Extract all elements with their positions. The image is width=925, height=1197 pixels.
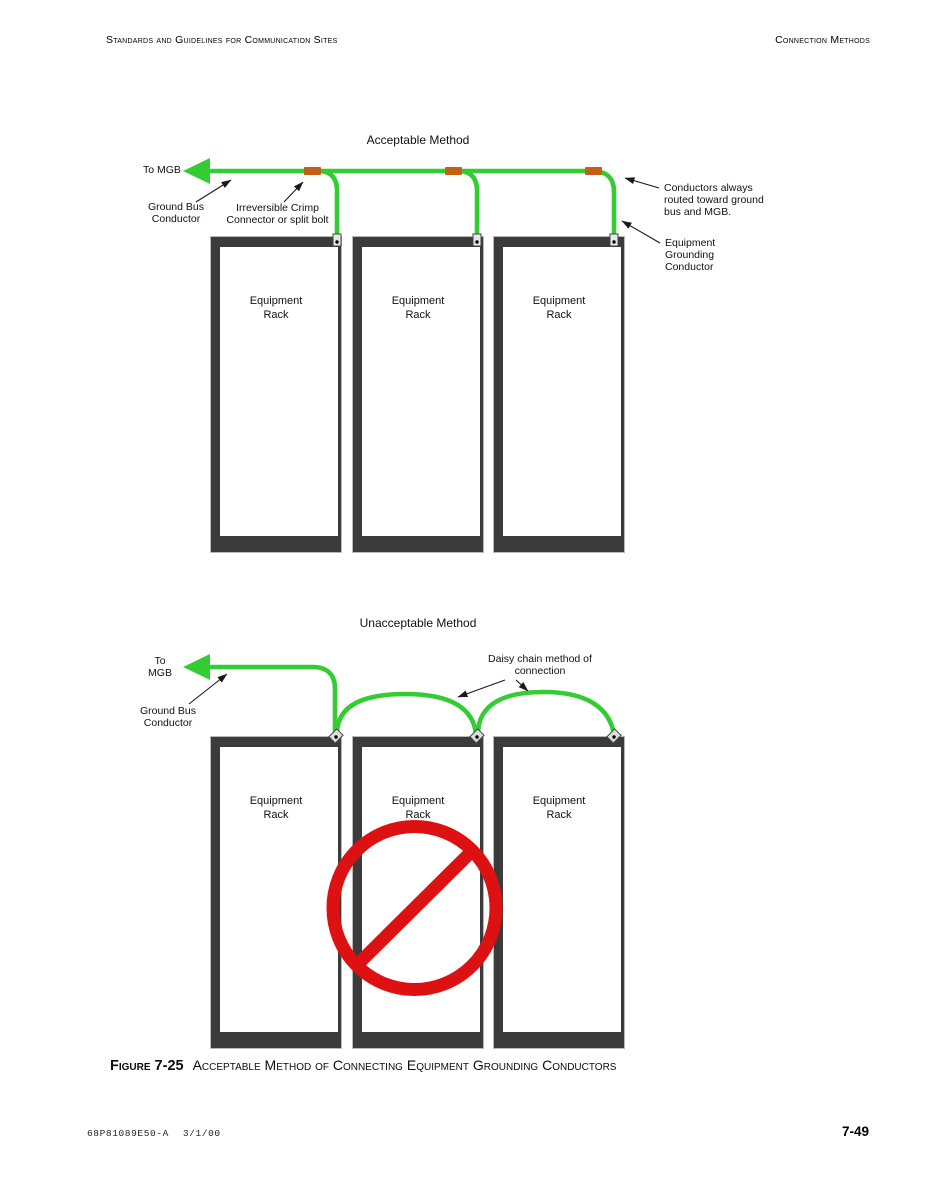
equipment-rack: Equipment Rack <box>494 237 624 552</box>
rack-right-bar <box>480 743 483 1048</box>
rack-bottom-bar <box>494 1032 624 1048</box>
to-mgb-arrow-icon <box>183 654 210 680</box>
document-number: 68P81089E50-A <box>87 1128 169 1139</box>
daisy-chain-wire <box>337 694 476 734</box>
ground-bus-conductor-label: Ground Bus Conductor <box>133 201 219 225</box>
equipment-rack: Equipment Rack <box>211 237 341 552</box>
rack-top-bar <box>494 737 624 747</box>
rack-top-bar <box>353 737 483 747</box>
equipment-rack: Equipment Rack <box>211 737 341 1048</box>
rack-label: Equipment Rack <box>359 294 477 322</box>
rack-top-bar <box>494 237 624 247</box>
rack-right-bar <box>338 743 341 1048</box>
equipment-rack: Equipment Rack <box>353 737 483 1048</box>
rack-bottom-bar <box>211 1032 341 1048</box>
daisy-chain-wire <box>478 692 614 734</box>
crimp-connector-icon <box>304 167 321 175</box>
figure-number: Figure 7-25 <box>110 1058 184 1074</box>
page-number: 7-49 <box>842 1124 869 1139</box>
rack-bottom-bar <box>353 1032 483 1048</box>
rack-left-bar <box>494 243 503 552</box>
conductors-routed-label: Conductors always routed toward ground b… <box>664 182 774 218</box>
equipment-grounding-conductor-label: Equipment Grounding Conductor <box>665 237 765 273</box>
rack-top-bar <box>211 237 341 247</box>
rack-right-bar <box>621 743 624 1048</box>
ground-bus-conductor-label: Ground Bus Conductor <box>126 705 210 729</box>
unacceptable-method-title: Unacceptable Method <box>268 616 568 630</box>
rack-right-bar <box>480 243 483 552</box>
equipment-rack: Equipment Rack <box>494 737 624 1048</box>
rack-right-bar <box>338 243 341 552</box>
crimp-connector-icon <box>445 167 462 175</box>
rack-label: Equipment Rack <box>500 794 618 822</box>
rack-label: Equipment Rack <box>500 294 618 322</box>
header-right-title: Connection Methods <box>775 34 870 46</box>
rack-left-bar <box>353 743 362 1048</box>
rack-left-bar <box>494 743 503 1048</box>
equipment-rack: Equipment Rack <box>353 237 483 552</box>
irreversible-crimp-label: Irreversible Crimp Connector or split bo… <box>215 202 340 226</box>
figure-caption: Figure 7-25Acceptable Method of Connecti… <box>110 1057 616 1074</box>
document-page: Standards and Guidelines for Communicati… <box>0 0 925 1197</box>
header-left-title: Standards and Guidelines for Communicati… <box>106 34 337 46</box>
rack-left-bar <box>353 243 362 552</box>
rack-top-bar <box>353 237 483 247</box>
rack-bottom-bar <box>494 536 624 552</box>
to-mgb-label: To MGB <box>143 164 181 176</box>
acceptable-method-title: Acceptable Method <box>268 133 568 147</box>
rack-right-bar <box>621 243 624 552</box>
rack-label: Equipment Rack <box>359 794 477 822</box>
crimp-connector-icon <box>585 167 602 175</box>
rack-bottom-bar <box>353 536 483 552</box>
to-mgb-label: To MGB <box>138 655 182 679</box>
rack-bottom-bar <box>211 536 341 552</box>
figure-title: Acceptable Method of Connecting Equipmen… <box>193 1057 617 1073</box>
rack-top-bar <box>211 737 341 747</box>
page-header: Standards and Guidelines for Communicati… <box>106 34 870 46</box>
document-date: 3/1/00 <box>183 1128 221 1139</box>
to-mgb-arrow-icon <box>183 158 210 184</box>
annotation-arrow <box>189 674 528 704</box>
rack-left-bar <box>211 243 220 552</box>
daisy-chain-label: Daisy chain method of connection <box>465 653 615 677</box>
rack-left-bar <box>211 743 220 1048</box>
footer-doc-info: 68P81089E50-A3/1/00 <box>87 1128 221 1139</box>
equipment-grounding-wire <box>458 171 477 235</box>
rack-label: Equipment Rack <box>217 794 335 822</box>
ground-bus-wire <box>203 667 335 733</box>
rack-label: Equipment Rack <box>217 294 335 322</box>
